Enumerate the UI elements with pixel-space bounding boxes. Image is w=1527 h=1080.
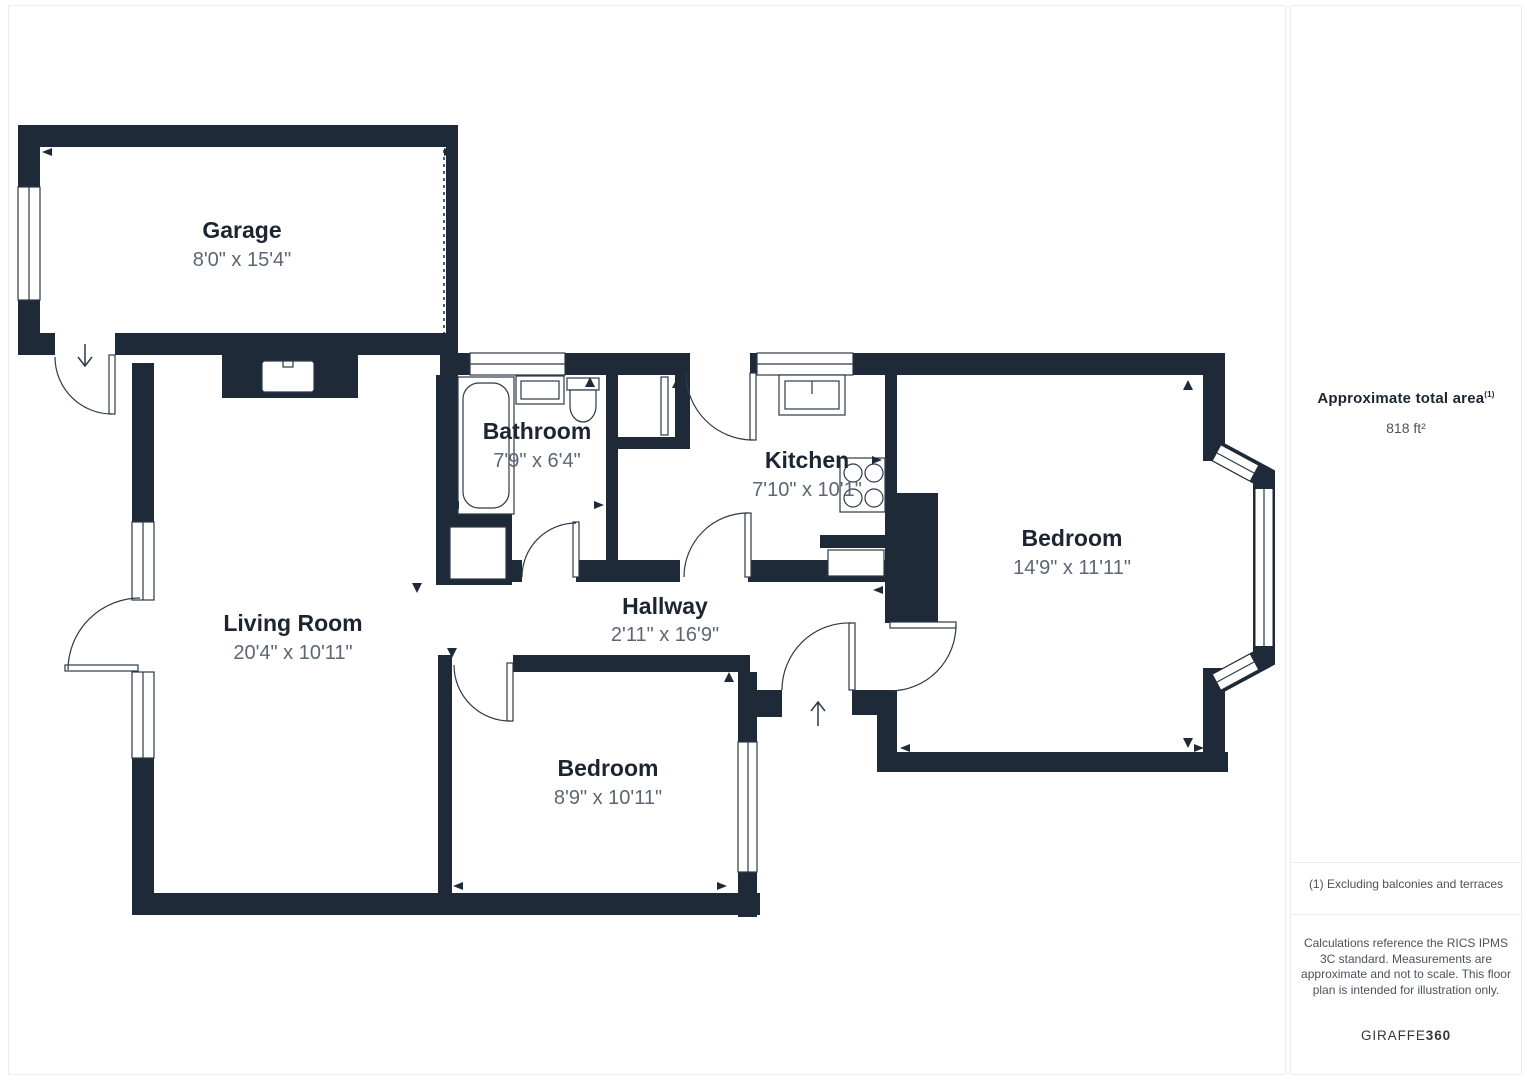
fireplace-icon — [262, 361, 314, 392]
room-garage: Garage 8'0" x 15'4" — [193, 217, 292, 271]
room-hallway: Hallway 2'11" x 16'9" — [611, 593, 719, 646]
room-label: Hallway — [622, 593, 708, 619]
area-footnote: (1) Excluding balconies and terraces — [1291, 877, 1521, 891]
footnote-marker: (1) — [1484, 390, 1494, 399]
room-labels: Garage 8'0" x 15'4" Bathroom 7'9" x 6'4"… — [193, 217, 1131, 809]
total-area-label: Approximate total area(1) — [1291, 390, 1521, 407]
giraffe360-logo: GIRAFFE360 — [1291, 1028, 1521, 1043]
room-dims: 20'4" x 10'11" — [233, 642, 352, 664]
door-arc — [522, 522, 579, 577]
room-label: Kitchen — [765, 447, 849, 473]
room-dims: 14'9" x 11'11" — [1013, 557, 1131, 579]
window — [18, 187, 40, 300]
sidebar-divider — [1291, 862, 1521, 863]
room-dims: 8'0" x 15'4" — [193, 249, 292, 271]
room-label: Bedroom — [558, 755, 659, 781]
room-bedroom-1: Bedroom 14'9" x 11'11" — [1013, 525, 1131, 579]
hallway-cupboard — [828, 550, 884, 576]
entry-arrow-garage — [78, 344, 92, 366]
door-arc — [684, 513, 751, 577]
kitchen-sink-icon — [779, 375, 845, 415]
room-label: Bathroom — [483, 418, 592, 444]
closet-door — [661, 377, 668, 435]
door-arc — [454, 663, 513, 721]
total-area-value: 818 ft² — [1291, 420, 1521, 436]
disclaimer-text: Calculations reference the RICS IPMS 3C … — [1300, 936, 1512, 998]
bathtub-icon — [458, 377, 514, 514]
bathroom-sink-icon — [516, 376, 564, 404]
window — [132, 522, 154, 600]
door-arc — [890, 622, 956, 691]
room-dims: 2'11" x 16'9" — [611, 624, 719, 646]
room-label: Living Room — [223, 610, 362, 636]
door-arc — [686, 373, 756, 440]
window — [132, 672, 154, 758]
total-area-block: Approximate total area(1) 818 ft² — [1291, 390, 1521, 436]
entry-arrow-front-door — [811, 702, 825, 726]
window — [757, 353, 853, 375]
window — [470, 353, 565, 375]
room-dims: 7'9" x 6'4" — [493, 450, 580, 472]
room-dims: 8'9" x 10'11" — [554, 787, 662, 809]
sidebar-divider — [1291, 914, 1521, 915]
bathroom-cupboard — [450, 527, 506, 579]
room-living-room: Living Room 20'4" x 10'11" — [223, 610, 362, 664]
floor-plan: Garage 8'0" x 15'4" Bathroom 7'9" x 6'4"… — [0, 0, 1527, 1080]
window — [738, 742, 757, 872]
room-bedroom-2: Bedroom 8'9" x 10'11" — [554, 755, 662, 809]
door-arc — [65, 598, 140, 671]
door-arc — [782, 623, 855, 690]
room-label: Garage — [202, 217, 281, 243]
toilet-icon — [567, 378, 599, 422]
room-dims: 7'10" x 10'1" — [752, 479, 862, 501]
room-label: Bedroom — [1022, 525, 1123, 551]
